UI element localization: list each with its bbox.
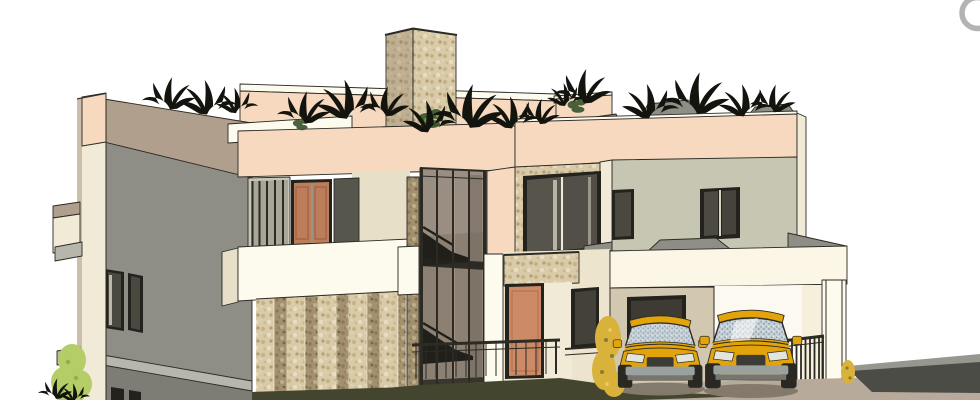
viewport-3d[interactable]: 3D exterior view of modern two-storey vi… xyxy=(0,0,980,400)
yellow-shrub-small xyxy=(841,360,855,384)
viewport[interactable]: 3D exterior view of modern two-storey vi… xyxy=(0,0,980,400)
